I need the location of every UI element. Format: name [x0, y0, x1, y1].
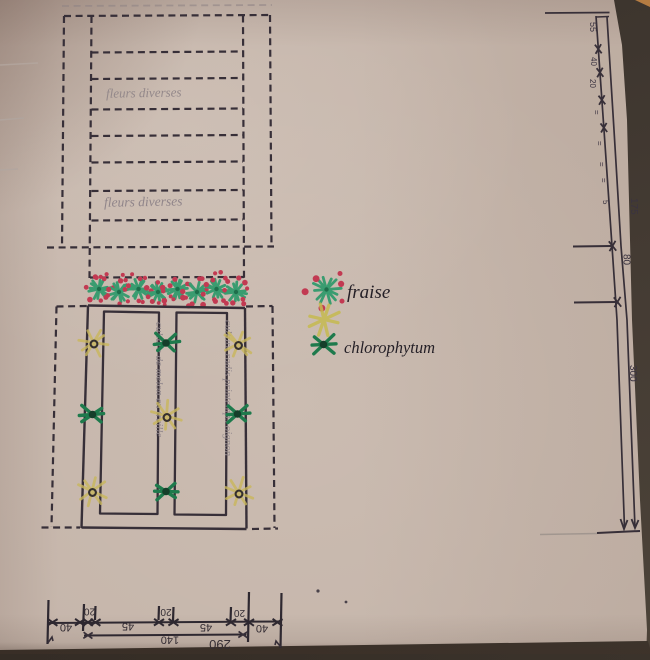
svg-text:=: = [597, 162, 606, 167]
svg-text:175: 175 [628, 198, 639, 215]
svg-text:fraise: fraise [347, 282, 390, 303]
svg-text:290: 290 [209, 637, 231, 652]
svg-text:300: 300 [627, 365, 638, 382]
svg-text:55: 55 [588, 22, 598, 32]
svg-text:20: 20 [588, 79, 597, 88]
svg-text:40: 40 [60, 621, 72, 633]
svg-text:20: 20 [160, 606, 172, 617]
svg-text:45: 45 [122, 620, 134, 632]
svg-text:=: = [592, 110, 601, 115]
svg-text:40: 40 [589, 57, 598, 66]
svg-text:20: 20 [84, 606, 96, 617]
svg-text:45: 45 [200, 621, 212, 633]
svg-text:80: 80 [621, 254, 632, 266]
svg-text:140: 140 [161, 634, 179, 646]
svg-text:fleurs diverses: fleurs diverses [104, 193, 183, 209]
svg-text:=: = [599, 178, 608, 183]
svg-text:fleurs diverses: fleurs diverses [106, 84, 182, 100]
svg-text:5: 5 [601, 200, 610, 205]
svg-text:40: 40 [256, 622, 268, 634]
svg-text:chlorophytum: chlorophytum [344, 338, 435, 357]
svg-text:20: 20 [234, 607, 246, 618]
svg-text:=: = [595, 141, 604, 146]
